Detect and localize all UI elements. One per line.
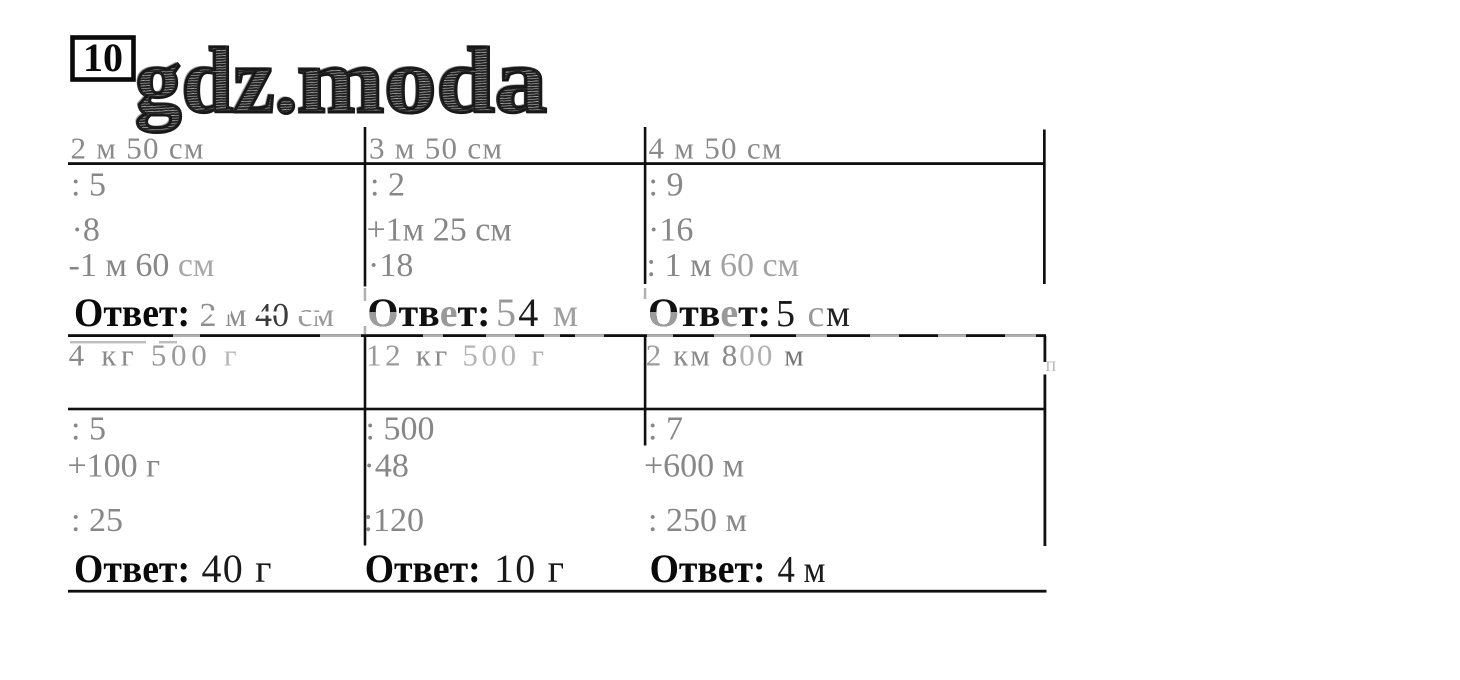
- svg-text:: 5: : 5: [71, 167, 106, 204]
- svg-text:3 м 50 см: 3 м 50 см: [369, 130, 502, 165]
- svg-text::120: :120: [364, 502, 424, 539]
- svg-text:+600 м: +600 м: [644, 448, 744, 485]
- svg-text:+100 г: +100 г: [68, 448, 161, 485]
- svg-text:п: п: [1046, 354, 1057, 376]
- svg-text:: 250 м: : 250 м: [648, 502, 747, 539]
- svg-text:54 м: 54 м: [496, 290, 578, 335]
- svg-text:·16: ·16: [648, 212, 693, 249]
- svg-text:Ответ:: Ответ:: [650, 546, 766, 591]
- svg-text:10 г: 10 г: [494, 546, 564, 591]
- svg-text:: 5: : 5: [71, 411, 106, 448]
- svg-text:40 г: 40 г: [202, 546, 272, 591]
- svg-text:-1 м 60 см: -1 м 60 см: [69, 247, 215, 284]
- svg-text:4 м: 4 м: [778, 549, 826, 591]
- svg-text:Ответ:: Ответ:: [74, 290, 190, 335]
- svg-text:: 1 м 60 см: : 1 м 60 см: [647, 247, 800, 284]
- svg-text:: 25: : 25: [71, 502, 123, 539]
- svg-text:: 7: : 7: [648, 411, 683, 448]
- svg-text:4 кг 500 г: 4 кг 500 г: [69, 338, 237, 373]
- svg-text:moda: moda: [296, 29, 546, 132]
- svg-text:10: 10: [83, 35, 123, 80]
- svg-text:Ответ:: Ответ:: [74, 546, 190, 591]
- svg-text:·18: ·18: [368, 247, 413, 284]
- svg-text:·48: ·48: [364, 448, 409, 485]
- svg-text:: 2: : 2: [370, 167, 405, 204]
- svg-text:5 см: 5 см: [776, 293, 850, 335]
- svg-text:4 м 50 см: 4 м 50 см: [649, 130, 782, 165]
- svg-text:: 500: : 500: [366, 411, 435, 448]
- svg-text:·8: ·8: [72, 212, 100, 249]
- svg-text:+1м 25 см: +1м 25 см: [367, 212, 512, 249]
- svg-text:: 9: : 9: [649, 167, 684, 204]
- svg-text:2 км 800 м: 2 км 800 м: [646, 338, 804, 373]
- svg-text:12 кг 500 г: 12 кг 500 г: [366, 338, 544, 373]
- svg-text:gdz.: gdz.: [134, 29, 297, 132]
- svg-text:2 м 50 см: 2 м 50 см: [71, 130, 204, 165]
- svg-text:Ответ:: Ответ:: [365, 546, 481, 591]
